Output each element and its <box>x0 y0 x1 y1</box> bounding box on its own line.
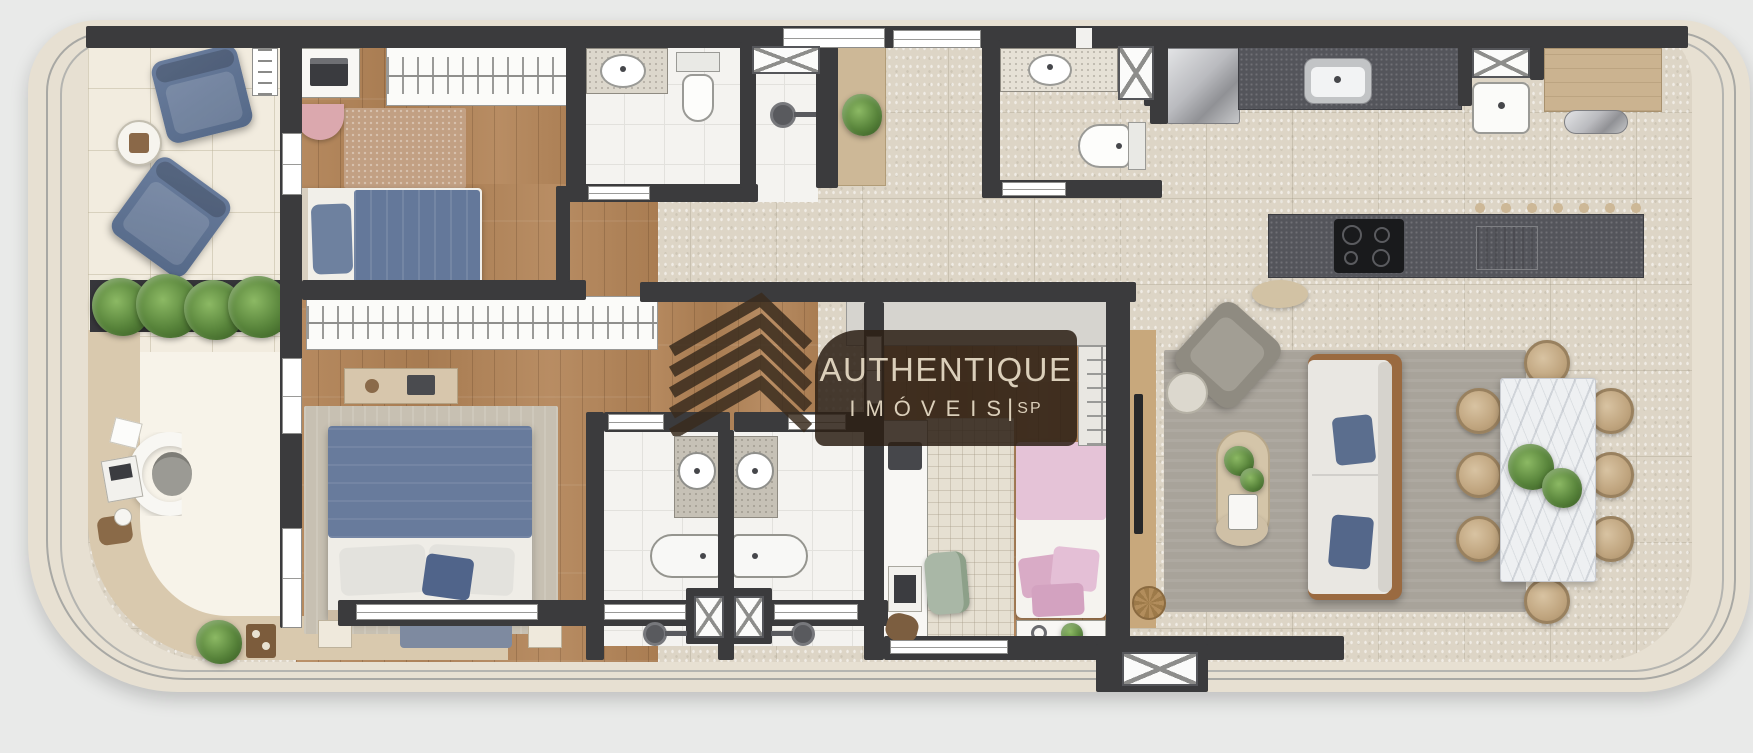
sofa-pillow-1 <box>1332 414 1377 466</box>
bathroom1-faucet <box>620 66 626 72</box>
shower1-arm <box>794 112 818 117</box>
dresser-decor-plate <box>365 379 379 393</box>
shower1-head <box>770 102 796 128</box>
shower1-glass-door <box>752 46 820 74</box>
burner <box>1374 227 1390 243</box>
bedroom3-printer <box>888 442 922 470</box>
kitchen-island <box>1268 214 1644 278</box>
basket <box>1132 586 1166 620</box>
wall-mid-left <box>302 280 586 300</box>
tv <box>1134 394 1143 534</box>
bedroom3-window <box>890 640 1008 654</box>
floor-plan: AUTHENTIQUE IMÓVEIS | SP <box>0 0 1753 753</box>
doormat-dot <box>252 630 260 638</box>
sofa <box>1308 354 1402 600</box>
showerA-glass <box>694 596 724 638</box>
bedroom3-chair <box>923 550 970 615</box>
master-dresser <box>344 368 458 404</box>
dining-chair-left-2 <box>1456 452 1502 498</box>
bathroomB-flush <box>752 553 758 559</box>
entry-door-2 <box>893 30 981 48</box>
wall-bathroom1-left <box>566 42 586 192</box>
cooktop <box>1334 219 1404 273</box>
dining-chair-left-1 <box>1456 388 1502 434</box>
master-wardrobe <box>306 296 658 350</box>
lavabo-toilet-bowl <box>1078 124 1130 168</box>
master-terrace-window <box>282 528 302 628</box>
bedroom3-laptop <box>888 566 922 612</box>
watermark-brand-text: AUTHENTIQUE <box>819 353 1072 386</box>
lavabo-toilet-tank <box>1128 122 1146 170</box>
dresser-tv <box>407 375 435 395</box>
service-door-gap <box>1076 28 1092 48</box>
dining-table-plant-2 <box>1542 468 1582 508</box>
showerB-arm <box>771 631 793 636</box>
watermark-separator: | <box>1007 395 1013 423</box>
watermark-imoveis-text: IMÓVEIS <box>849 396 1011 422</box>
showerB-glass <box>734 596 764 638</box>
showerA-head <box>643 622 667 646</box>
bathroomB-faucet <box>752 468 758 474</box>
hall-console-plant <box>842 94 882 136</box>
kitchen-faucet <box>1334 76 1341 83</box>
wall-top <box>86 26 1688 48</box>
master-terrace-door <box>282 358 302 434</box>
lavabo-flush-button <box>1116 143 1122 149</box>
sofa-pillow-2 <box>1328 514 1374 569</box>
bedroom1-terrace-door <box>282 133 302 195</box>
coffee-table-tray <box>1228 494 1258 530</box>
sofa-backrest <box>1378 362 1392 592</box>
burner <box>1372 249 1390 267</box>
showerA-arm <box>665 631 687 636</box>
bed-blanket <box>354 190 480 288</box>
bedroom3-pillow-3 <box>1031 583 1085 618</box>
laundry-table <box>1544 48 1662 112</box>
bedroom1-rug <box>344 108 466 188</box>
bathroomB-toilet <box>732 534 808 578</box>
bathroom1-toilet-tank <box>676 52 720 72</box>
ac-unit <box>1122 652 1198 686</box>
bathroomA-window <box>604 604 686 620</box>
bedroom3-bed <box>1016 442 1106 618</box>
watermark-chevron-logo <box>666 288 814 436</box>
bathroom1-door <box>588 186 650 200</box>
master-blanket <box>328 426 532 538</box>
bed-pillow <box>311 203 353 274</box>
terrace-vent <box>252 48 278 96</box>
watermark-panel: AUTHENTIQUE IMÓVEIS | SP <box>815 330 1077 446</box>
bedroom3-blanket <box>1016 442 1106 520</box>
lavabo-door <box>1002 182 1066 196</box>
burner <box>1344 251 1358 265</box>
master-bed <box>328 426 532 620</box>
master-accent-pillow <box>421 553 474 601</box>
wall-lavabo-left <box>982 40 1000 198</box>
terrace-doormat <box>246 624 276 658</box>
island-stool-row <box>1474 202 1644 214</box>
terrace-desk-chair <box>152 452 192 496</box>
master-window <box>356 604 538 620</box>
living-side-table <box>1166 372 1208 414</box>
dining-chair-left-3 <box>1456 516 1502 562</box>
pouf-near-island <box>1252 280 1308 308</box>
lavabo-shaft <box>1118 46 1154 100</box>
watermark-region-text: SP <box>1017 400 1042 418</box>
doormat-dot <box>262 642 270 650</box>
bathroomA-toilet <box>650 534 722 578</box>
lavabo-faucet <box>1047 64 1053 70</box>
wall-bedroom3-right <box>1106 282 1130 648</box>
bedroom1-laptop <box>310 58 348 86</box>
dining-chair-bottom <box>1524 578 1570 624</box>
bathroom1-toilet-bowl <box>682 74 714 122</box>
refrigerator <box>1166 48 1240 124</box>
wall-laundry-stub-left <box>1458 46 1472 106</box>
laundry-rack <box>1472 48 1530 78</box>
terrace-table-tray <box>129 133 149 153</box>
lavabo-sink <box>1028 54 1072 86</box>
master-pillow-left <box>339 544 427 596</box>
bathroomB-window <box>774 604 858 620</box>
watermark-line2: IMÓVEIS | SP <box>849 395 1042 423</box>
coffee-table-plant-2 <box>1240 468 1264 492</box>
bedroom1-bed <box>296 188 482 290</box>
terrace-cup <box>114 508 132 526</box>
wall-laundry-stub-right <box>1530 46 1544 80</box>
terrace-laptop <box>101 455 144 503</box>
bedroom1-wardrobe <box>386 46 578 106</box>
sofa-seat-divider <box>1312 474 1378 476</box>
terrace-plant-pot <box>196 620 242 664</box>
wall-hall-stub <box>556 186 570 282</box>
burner <box>1342 225 1362 245</box>
bathroomA-door <box>608 414 664 430</box>
small-appliance <box>1564 110 1628 134</box>
entry-door-1 <box>783 28 885 48</box>
bathroomA-faucet <box>694 468 700 474</box>
laptop-keys <box>894 575 916 603</box>
laptop-screen <box>109 463 133 481</box>
showerB-head <box>791 622 815 646</box>
bathroomA-flush <box>700 553 706 559</box>
island-tray <box>1476 226 1538 270</box>
laundry-faucet <box>1498 102 1505 109</box>
